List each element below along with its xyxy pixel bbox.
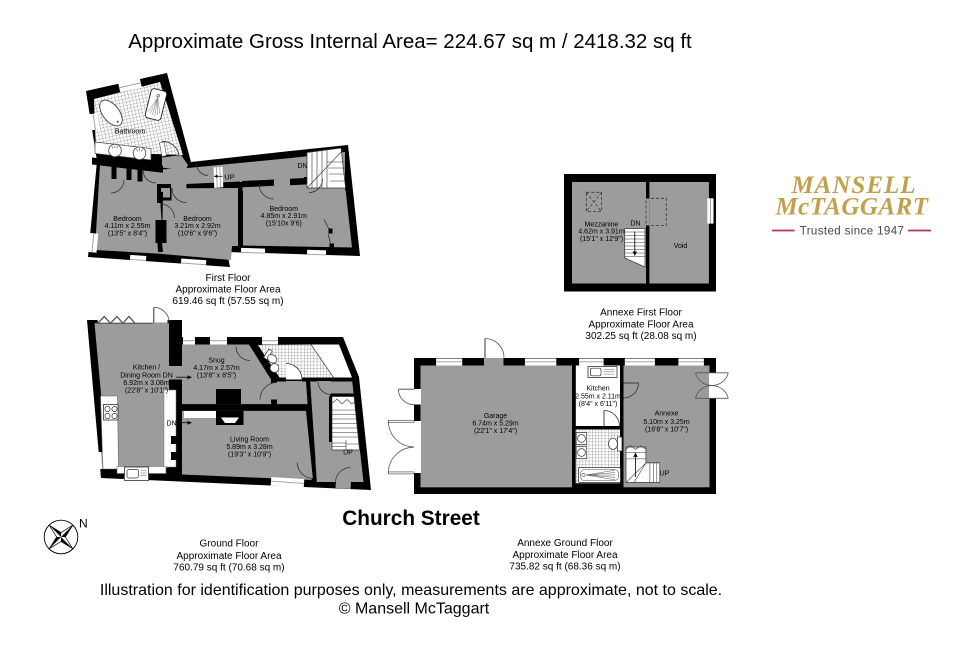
svg-text:Bedroom: Bedroom xyxy=(270,206,299,213)
svg-text:Approximate Gross Internal Are: Approximate Gross Internal Area= 224.67 … xyxy=(128,30,692,53)
svg-text:735.82 sq ft (68.36 sq m): 735.82 sq ft (68.36 sq m) xyxy=(509,562,620,573)
svg-text:4.17m x 2.57m: 4.17m x 2.57m xyxy=(193,365,239,372)
svg-text:302.25 sq ft (28.08 sq m): 302.25 sq ft (28.08 sq m) xyxy=(585,331,696,342)
svg-text:Church Street: Church Street xyxy=(342,507,480,530)
svg-text:6.74m x 5.29m: 6.74m x 5.29m xyxy=(472,420,518,427)
svg-text:Illustration for identificatio: Illustration for identification purposes… xyxy=(100,582,722,599)
svg-text:4.62m x 3.91m: 4.62m x 3.91m xyxy=(578,229,624,236)
svg-text:5.89m x 3.28m: 5.89m x 3.28m xyxy=(226,444,272,451)
svg-text:First Floor: First Floor xyxy=(206,273,252,284)
svg-text:N: N xyxy=(79,517,88,531)
svg-text:(22'8" x 10'1"): (22'8" x 10'1") xyxy=(125,388,168,395)
svg-text:DN: DN xyxy=(297,163,307,170)
svg-text:Dining Room DN: Dining Room DN xyxy=(120,372,173,379)
svg-text:(8'4" x 6'11"): (8'4" x 6'11") xyxy=(579,401,618,408)
svg-text:4.85m x 2.91m: 4.85m x 2.91m xyxy=(261,213,307,220)
svg-text:(15'1" x 12'9"): (15'1" x 12'9") xyxy=(580,236,623,243)
svg-text:Void: Void xyxy=(674,243,688,250)
svg-text:McTAGGART: McTAGGART xyxy=(774,194,929,221)
svg-text:Kitchen /: Kitchen / xyxy=(133,365,160,372)
svg-text:(22'1" x 17'4"): (22'1" x 17'4") xyxy=(474,428,517,435)
svg-text:© Mansell McTaggart: © Mansell McTaggart xyxy=(339,601,490,618)
svg-text:Ground Floor: Ground Floor xyxy=(200,539,260,550)
svg-text:Approximate Floor Area: Approximate Floor Area xyxy=(176,551,281,562)
svg-text:Approximate Floor Area: Approximate Floor Area xyxy=(512,550,617,561)
svg-text:(15'10x 9'6): (15'10x 9'6) xyxy=(266,220,302,227)
svg-text:(13'8" x 8'5"): (13'8" x 8'5") xyxy=(197,373,236,380)
svg-text:3.21m x 2.92m: 3.21m x 2.92m xyxy=(174,223,220,230)
svg-text:Mezzanine: Mezzanine xyxy=(585,222,619,229)
svg-text:Kitchen: Kitchen xyxy=(586,386,609,393)
svg-text:2.55m x 2.11m: 2.55m x 2.11m xyxy=(575,393,621,400)
svg-text:5.10m x 3.25m: 5.10m x 3.25m xyxy=(643,419,689,426)
svg-text:6.92m x 3.08m: 6.92m x 3.08m xyxy=(123,380,169,387)
svg-text:Annexe Ground Floor: Annexe Ground Floor xyxy=(517,538,613,549)
svg-text:DN: DN xyxy=(166,420,176,427)
svg-text:Approximate Floor Area: Approximate Floor Area xyxy=(175,285,280,296)
svg-text:Annexe First Floor: Annexe First Floor xyxy=(600,307,682,318)
svg-text:Snug: Snug xyxy=(208,358,224,365)
svg-text:619.46 sq ft (57.55 sq m): 619.46 sq ft (57.55 sq m) xyxy=(172,296,283,307)
svg-text:(19'3" x 10'9"): (19'3" x 10'9") xyxy=(228,451,271,458)
svg-text:Bedroom: Bedroom xyxy=(183,216,212,223)
svg-text:Bedroom: Bedroom xyxy=(113,216,142,223)
svg-text:(16'8" x 10'7"): (16'8" x 10'7") xyxy=(645,427,688,434)
svg-text:760.79 sq ft (70.68 sq m): 760.79 sq ft (70.68 sq m) xyxy=(173,563,284,574)
svg-text:Bathroom: Bathroom xyxy=(115,129,146,136)
svg-text:Annexe: Annexe xyxy=(655,411,679,418)
svg-text:(10'6" x 9'6"): (10'6" x 9'6") xyxy=(178,230,217,237)
svg-text:Approximate Floor Area: Approximate Floor Area xyxy=(588,319,693,330)
svg-text:4.11m x 2.55m: 4.11m x 2.55m xyxy=(105,223,151,230)
svg-text:(13'5" x 8'4"): (13'5" x 8'4") xyxy=(108,230,147,237)
svg-text:UP: UP xyxy=(224,173,234,182)
svg-text:Living Room: Living Room xyxy=(230,437,269,444)
svg-text:Garage: Garage xyxy=(484,413,507,420)
svg-text:UP: UP xyxy=(343,450,353,457)
svg-text:DN: DN xyxy=(630,220,640,227)
svg-text:Trusted since 1947: Trusted since 1947 xyxy=(800,226,905,238)
svg-text:UP: UP xyxy=(660,471,670,478)
